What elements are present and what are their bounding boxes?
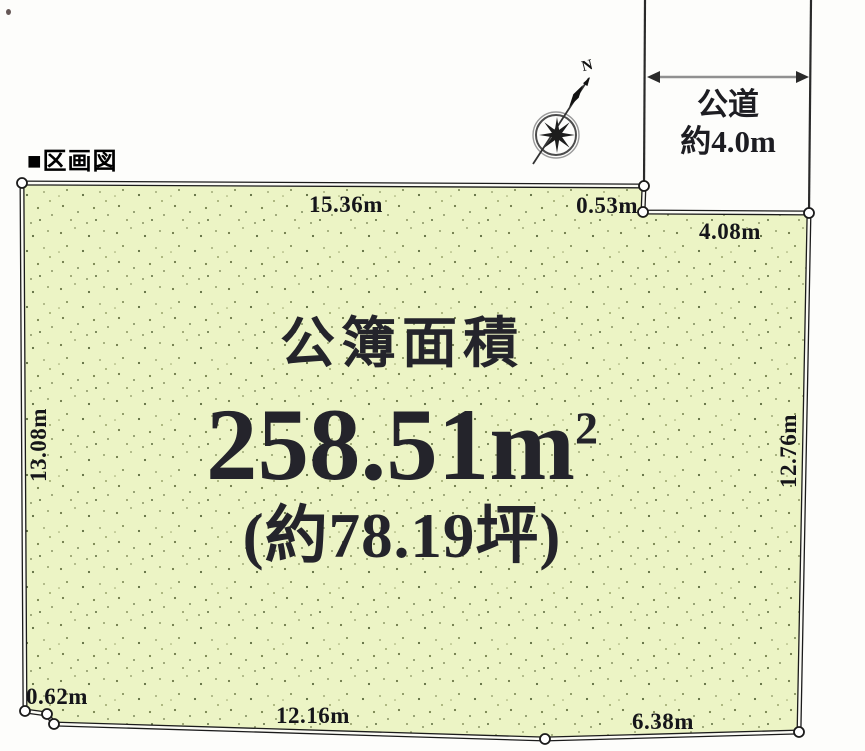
road-width-arrowhead-right (796, 71, 809, 83)
compass-rose (533, 77, 590, 164)
corner-marker (794, 727, 804, 737)
dim-upper-right: 4.08m (692, 219, 768, 245)
compass-star (539, 117, 575, 153)
dim-left-side: 13.08m (27, 403, 51, 487)
scan-artifact-speck (6, 9, 11, 15)
dim-bottom-right: 6.38m (625, 709, 701, 735)
area-number: 258.51m (206, 388, 575, 502)
corner-marker (639, 181, 649, 191)
corner-marker (540, 734, 550, 744)
area-superscript: 2 (575, 403, 598, 454)
dim-bottom: 12.16m (266, 703, 360, 729)
road-name: 公道 (645, 86, 811, 123)
corner-marker (17, 178, 27, 188)
registered-area-value: 258.51m2 (52, 394, 752, 497)
north-needle-diamond (569, 85, 583, 107)
road-label: 公道 約4.0m (645, 86, 811, 160)
dim-right-side: 12.76m (777, 409, 801, 493)
dim-top: 15.36m (296, 192, 396, 218)
registered-area-heading: 公簿面積 (102, 316, 702, 371)
corner-marker (42, 709, 52, 719)
road-width-value: 約4.0m (645, 123, 811, 160)
page-title: ■区画図 (27, 141, 118, 176)
dim-bottom-notch: 0.62m (22, 684, 92, 710)
road-width-arrowhead-left (647, 71, 660, 83)
corner-marker (638, 207, 648, 217)
corner-marker (804, 208, 814, 218)
area-tsubo-value: (約78.19坪) (102, 505, 702, 568)
corner-marker (49, 719, 59, 729)
plot-map-page: ■区画図 公道 約4.0m N 公簿面積 258.51m2 (約78.19坪) … (0, 0, 865, 751)
dim-top-notch: 0.53m (572, 193, 638, 219)
